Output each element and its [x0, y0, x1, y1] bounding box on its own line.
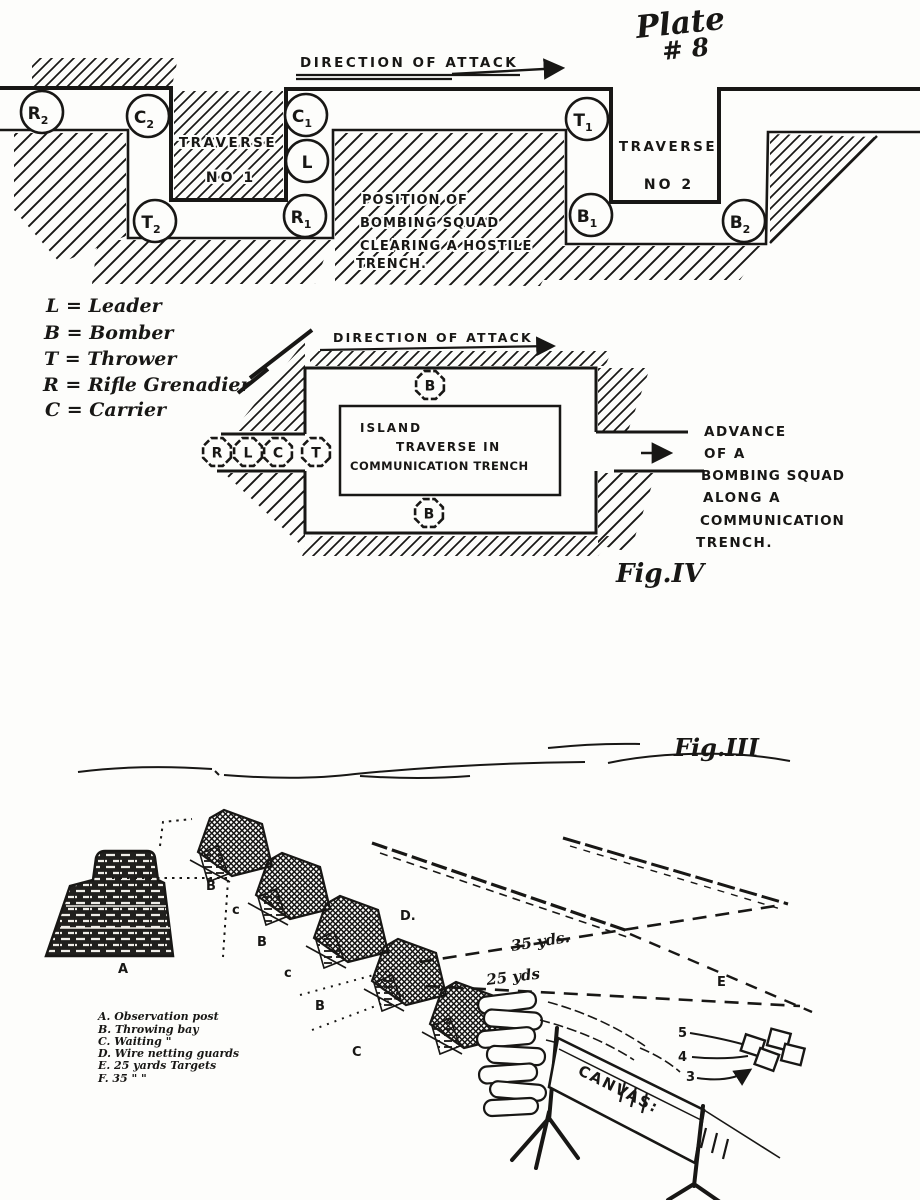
- fig3-caption: Fig.III: [673, 733, 760, 762]
- squad-marker: T1: [566, 98, 608, 140]
- advance-note-line: TRENCH.: [696, 535, 773, 551]
- fig3-key: A. Observation post B. Throwing bay C. W…: [97, 1010, 239, 1085]
- fig4-caption: Fig.IV: [615, 559, 707, 589]
- distance-25-label: 25 yds: [484, 964, 541, 989]
- legend-item: L = Leader: [45, 295, 164, 317]
- field-label: 3: [686, 1070, 695, 1085]
- target-line-extension: [630, 934, 812, 1012]
- squad-marker: L: [286, 140, 328, 182]
- field-label: C: [352, 1045, 362, 1060]
- hatch-ground-below2: [534, 246, 764, 280]
- squad-marker-label: L: [244, 446, 253, 462]
- canvas-rope: [704, 1110, 780, 1158]
- target-line-near: [563, 838, 788, 904]
- legend-item: B = Bomber: [43, 322, 175, 344]
- squad-marker: T2: [134, 200, 176, 242]
- legend-item: R = Rifle Grenadier: [42, 374, 253, 396]
- advance-note: ADVANCE OF A BOMBING SQUAD ALONG A COMMU…: [696, 424, 845, 551]
- throwing-bays: [190, 810, 504, 1054]
- traverse2-number: NO 2: [644, 177, 694, 193]
- dashed-line-35yds: [420, 906, 775, 962]
- observation-post: [46, 851, 173, 956]
- squad-marker-label: B: [424, 507, 435, 523]
- squad-marker: R2: [21, 91, 63, 133]
- squad-marker: R: [203, 438, 231, 466]
- advance-note-line: ALONG A: [703, 490, 781, 506]
- hatch-top-band: [310, 351, 612, 366]
- hatch-left-bottom-triangle: [224, 473, 305, 549]
- island-label-line: COMMUNICATION TRENCH: [350, 459, 529, 473]
- field-label: B: [257, 935, 267, 950]
- squad-marker-label: R: [212, 446, 223, 462]
- targets-cluster: [690, 1029, 805, 1080]
- target-line-near-inner: [570, 846, 784, 910]
- traverse1-label: TRAVERSE: [179, 135, 277, 151]
- direction-of-attack-label-fig4: DIRECTION OF ATTACK: [333, 330, 533, 345]
- squad-marker: R1: [284, 195, 326, 237]
- field-label: E: [717, 975, 726, 990]
- position-note-line: POSITION OF: [362, 193, 468, 208]
- field-label: B: [206, 879, 216, 894]
- squad-marker: B: [416, 371, 444, 399]
- distance-35-label: 35 yds.: [510, 928, 571, 955]
- key-line: E. 25 yards Targets: [97, 1059, 216, 1072]
- direction-underline: [296, 75, 520, 79]
- plate-title-line2: # 8: [661, 32, 711, 66]
- squad-marker: B1: [570, 194, 612, 236]
- pointer-5: [690, 1033, 742, 1044]
- sandbag-stack: [476, 991, 546, 1117]
- key-line: F. 35 " ": [97, 1072, 147, 1085]
- position-note-line: BOMBING SQUAD: [360, 216, 499, 231]
- squad-marker: L: [234, 438, 262, 466]
- position-note-line: CLEARING A HOSTILE: [360, 239, 532, 254]
- field-label: 4: [678, 1050, 687, 1065]
- direction-of-attack-label: DIRECTION OF ATTACK: [300, 55, 518, 71]
- fire-trench-diagram: DIRECTION OF ATTACK TRAVERSE NO 1 TRAVER…: [0, 55, 920, 286]
- legend-item: T = Thrower: [44, 348, 178, 370]
- island-label-line: TRAVERSE IN: [396, 440, 501, 454]
- pointer-4: [692, 1056, 748, 1058]
- direction-arrow-fig4: [320, 346, 553, 350]
- plate-8-drawing: Plate # 8 DIRECTION OF ATTACK TRAVERSE N…: [0, 0, 920, 1200]
- legend-item: C = Carrier: [45, 399, 168, 421]
- hatch-ground-below1: [92, 240, 331, 284]
- squad-marker: C2: [127, 95, 169, 137]
- legend: L = Leader B = Bomber T = Thrower R = Ri…: [42, 295, 253, 421]
- squad-marker-label: L: [302, 153, 313, 173]
- advance-note-line: COMMUNICATION: [700, 513, 845, 529]
- plate-title: Plate # 8: [633, 1, 726, 66]
- scanned-plate-page: Plate # 8 DIRECTION OF ATTACK TRAVERSE N…: [0, 0, 920, 1200]
- squad-marker-label: C: [273, 446, 283, 462]
- traverse1-number: NO 1: [206, 170, 256, 186]
- field-label: 5: [678, 1026, 687, 1041]
- position-note-line: TRENCH.: [356, 257, 427, 272]
- island-traverse-diagram: DIRECTION OF ATTACK ISLAND TRAVERSE IN C…: [203, 330, 845, 589]
- squad-marker: C1: [285, 94, 327, 136]
- squad-marker: B: [415, 499, 443, 527]
- field-label: c: [284, 966, 292, 981]
- squad-marker: T: [302, 438, 330, 466]
- practice-ground-illustration: Fig.III 35 yds. 25 yds: [46, 733, 812, 1200]
- squad-marker: B2: [723, 200, 765, 242]
- advance-note-line: ADVANCE: [704, 424, 787, 440]
- field-label: D.: [400, 909, 416, 924]
- field-label: B: [315, 999, 325, 1014]
- pointer-3: [697, 1070, 750, 1079]
- canvas-screen: CANVAS:: [512, 1028, 780, 1200]
- throwing-bay: [190, 810, 272, 882]
- field-label: A: [118, 962, 128, 977]
- island-label-line: ISLAND: [360, 421, 422, 435]
- key-line: A. Observation post: [97, 1010, 219, 1023]
- target-line-far-inner: [380, 853, 630, 938]
- field-label: c: [232, 903, 240, 918]
- hatch-parapet-left: [32, 58, 178, 86]
- advance-note-line: OF A: [704, 446, 746, 462]
- hatch-right-bottom: [598, 473, 656, 552]
- hatch-right-top: [598, 368, 650, 431]
- traverse2-label: TRAVERSE: [619, 139, 717, 155]
- hatch-bottom-band: [302, 536, 614, 556]
- squad-marker-label: B: [425, 379, 436, 395]
- squad-marker: C: [264, 438, 292, 466]
- squad-marker-label: T: [311, 446, 321, 462]
- advance-note-line: BOMBING SQUAD: [701, 468, 845, 484]
